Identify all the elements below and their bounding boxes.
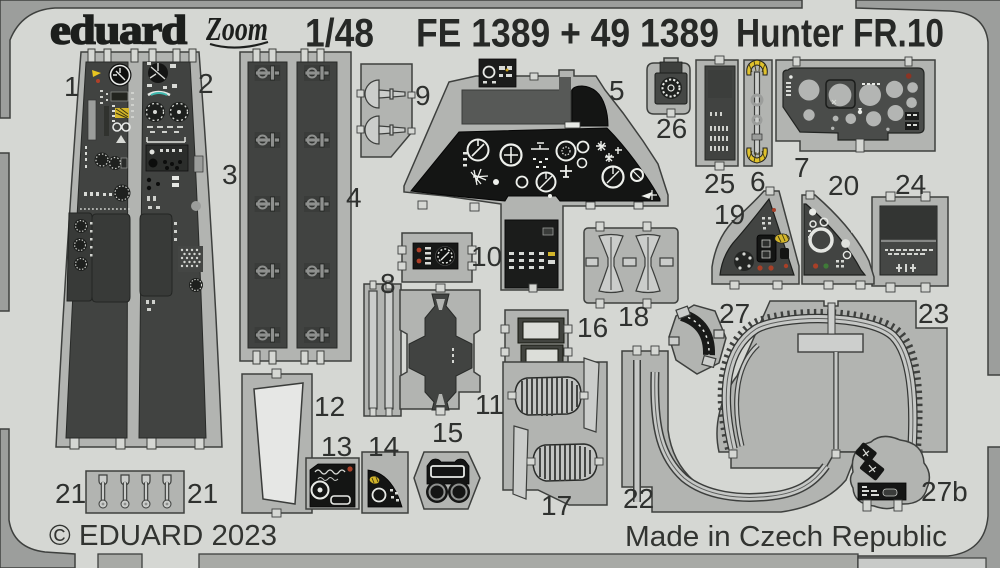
svg-text:9: 9 <box>415 80 431 111</box>
svg-text:23: 23 <box>918 298 949 329</box>
svg-text:21: 21 <box>55 478 86 509</box>
svg-text:4: 4 <box>346 182 362 213</box>
svg-text:3: 3 <box>222 159 238 190</box>
svg-text:FE 1389 + 49 1389: FE 1389 + 49 1389 <box>416 12 719 56</box>
svg-text:25: 25 <box>704 168 735 199</box>
svg-text:20: 20 <box>828 170 859 201</box>
svg-text:8: 8 <box>380 268 396 299</box>
svg-text:1/48: 1/48 <box>305 12 374 56</box>
svg-text:16: 16 <box>577 312 608 343</box>
svg-text:26: 26 <box>656 113 687 144</box>
svg-text:Zoom: Zoom <box>205 11 268 48</box>
svg-text:17: 17 <box>541 490 572 521</box>
svg-text:15: 15 <box>432 417 463 448</box>
svg-text:24: 24 <box>895 169 926 200</box>
svg-text:11: 11 <box>475 389 504 420</box>
svg-text:13: 13 <box>321 431 352 462</box>
svg-text:21: 21 <box>187 478 218 509</box>
svg-text:27b: 27b <box>921 476 968 507</box>
svg-text:19: 19 <box>714 199 745 230</box>
svg-text:12: 12 <box>314 391 345 422</box>
svg-text:Made in Czech Republic: Made in Czech Republic <box>625 521 947 553</box>
svg-text:18: 18 <box>618 301 649 332</box>
svg-text:5: 5 <box>609 75 625 106</box>
svg-text:10: 10 <box>471 241 502 272</box>
svg-text:7: 7 <box>794 152 810 183</box>
svg-text:Hunter FR.10: Hunter FR.10 <box>736 12 944 56</box>
svg-text:14: 14 <box>368 431 399 462</box>
svg-text:eduard: eduard <box>50 7 187 53</box>
svg-text:27: 27 <box>719 298 750 329</box>
svg-text:6: 6 <box>750 166 766 197</box>
svg-text:1: 1 <box>64 71 80 102</box>
svg-text:© EDUARD 2023: © EDUARD 2023 <box>49 520 277 552</box>
svg-text:22: 22 <box>623 483 654 514</box>
svg-text:2: 2 <box>198 68 214 99</box>
